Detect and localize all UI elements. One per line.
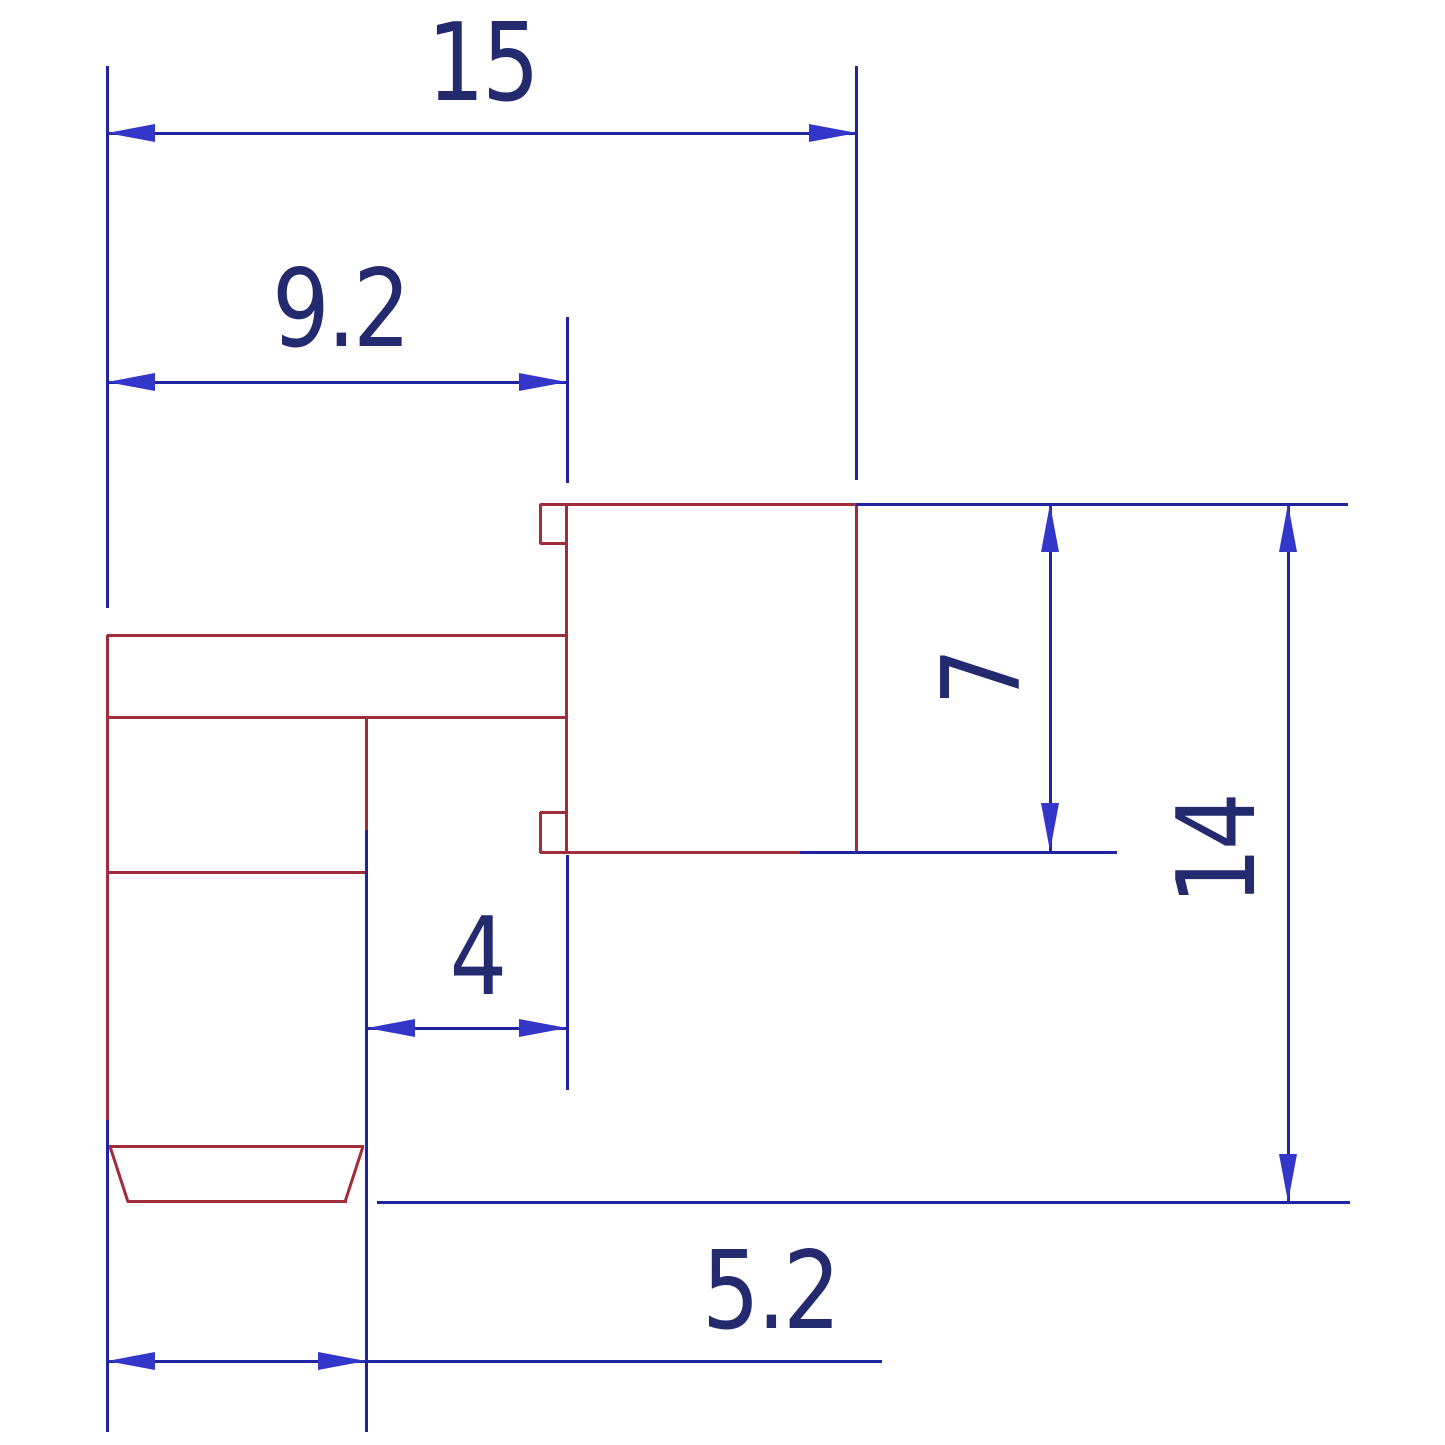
dim-line-14 (1287, 504, 1290, 1202)
ext-line-left-5-2 (106, 1120, 109, 1432)
right-part-bottom-tab-top-edge (540, 811, 567, 814)
arrowhead-4-right (519, 1019, 567, 1037)
arrowhead-9-2-left (107, 373, 155, 391)
dim-line-15 (107, 132, 857, 135)
dim-line-7 (1049, 504, 1052, 851)
arrowhead-14-up (1279, 504, 1297, 552)
foot-left-chamfer (109, 1146, 130, 1202)
dim-label-upper-width: 9.2 (272, 256, 408, 364)
dim-line-5-2 (107, 1360, 882, 1363)
ext-line-bottom-14 (377, 1201, 1350, 1204)
dim-label-total-height: 14 (1164, 795, 1272, 905)
right-part-top-tab-left-edge (539, 504, 542, 544)
technical-drawing-canvas: 15 9.2 7 14 4 5.2 (0, 0, 1445, 1445)
arrowhead-7-up (1041, 504, 1059, 552)
left-part-top-edge (107, 634, 566, 637)
ext-line-left-4 (365, 830, 368, 1432)
foot-top-edge (109, 1145, 364, 1148)
arrowhead-9-2-right (519, 373, 567, 391)
left-part-step-bottom-edge (107, 871, 366, 874)
dim-label-foot-width: 5.2 (702, 1238, 838, 1346)
foot-right-chamfer (344, 1146, 365, 1202)
ext-line-right-4 (566, 855, 569, 1090)
left-part-left-edge (106, 635, 109, 1146)
arrowhead-15-left (107, 124, 155, 142)
dim-label-total-width: 15 (427, 10, 537, 118)
arrowhead-7-down (1041, 803, 1059, 851)
arrowhead-5-2-left (107, 1352, 155, 1370)
ext-line-bottom-7 (800, 851, 1117, 854)
right-part-bottom-tab-left-edge (539, 812, 542, 853)
arrowhead-14-down (1279, 1154, 1297, 1202)
right-part-left-edge (565, 504, 568, 853)
dim-label-body-height: 7 (929, 650, 1037, 705)
left-part-flange-bottom-edge (107, 716, 567, 719)
arrowhead-15-right (809, 124, 857, 142)
right-part-top-edge (540, 503, 857, 506)
foot-bottom-edge (127, 1200, 347, 1203)
right-part-right-edge (855, 504, 858, 852)
arrowhead-5-2-right (318, 1352, 366, 1370)
dim-label-pin-gap: 4 (449, 904, 504, 1012)
ext-line-right-9-2 (566, 317, 569, 483)
ext-line-top-right-shared (856, 503, 1348, 506)
dim-line-9-2 (107, 381, 567, 384)
right-part-top-tab-bottom-edge (540, 542, 567, 545)
arrowhead-4-left (367, 1019, 415, 1037)
ext-line-left-shared (106, 66, 109, 608)
